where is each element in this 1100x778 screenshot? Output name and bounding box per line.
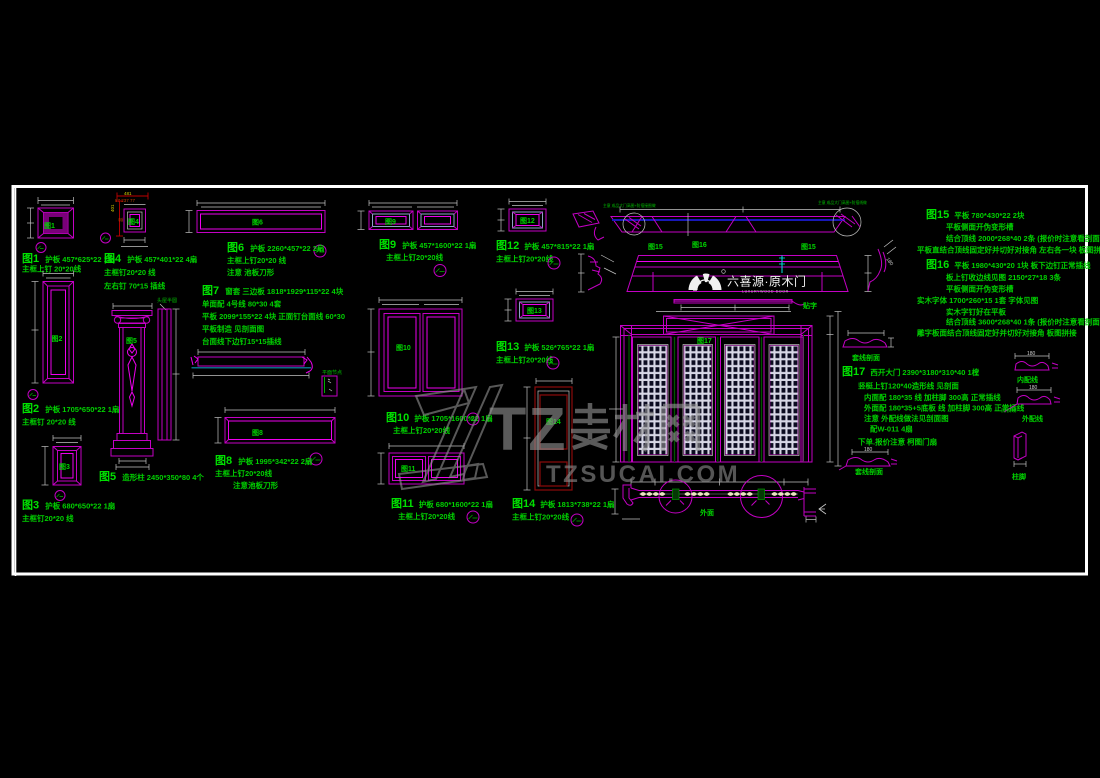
svg-text:单面配 4号线 80*30 4套: 单面配 4号线 80*30 4套 [202, 299, 282, 309]
svg-text:图8: 图8 [252, 428, 263, 437]
svg-text:图6: 图6 [252, 218, 263, 227]
svg-text:图5: 图5 [126, 336, 137, 345]
svg-text:主框钉 20*20 线: 主框钉 20*20 线 [22, 417, 76, 427]
svg-text:180: 180 [1027, 351, 1036, 357]
svg-text:注意 外配线做法见剖面图: 注意 外配线做法见剖面图 [864, 413, 949, 423]
svg-text:下单.报价注意 柯图门扇: 下单.报价注意 柯图门扇 [858, 437, 937, 447]
svg-text:平板侧面开伪变形槽: 平板侧面开伪变形槽 [946, 222, 1014, 232]
svg-text:柱脚: 柱脚 [1012, 472, 1026, 481]
svg-text:主框上钉 20*20线: 主框上钉 20*20线 [22, 264, 82, 274]
svg-text:主意 成品大门高图+防搭接图做: 主意 成品大门高图+防搭接图做 [603, 203, 656, 208]
svg-text:显: 显 [119, 217, 124, 222]
svg-text:贴字: 贴字 [802, 301, 817, 310]
svg-text:图3: 图3 [59, 462, 70, 471]
svg-text:TZ: TZ [489, 395, 568, 463]
svg-text:套线剖面: 套线剖面 [852, 353, 880, 362]
svg-text:主框上钉20*20线: 主框上钉20*20线 [512, 512, 570, 522]
svg-text:结合顶线 3600*268*40 1条 (报价时注意看剖面图: 结合顶线 3600*268*40 1条 (报价时注意看剖面图) [946, 317, 1100, 327]
svg-text:平板侧面开伪变形槽: 平板侧面开伪变形槽 [946, 284, 1014, 294]
svg-text:底板线: 底板线 [1001, 407, 1016, 414]
svg-text:外配线: 外配线 [1022, 414, 1043, 423]
svg-text:LUXURYWOOD DOOR: LUXURYWOOD DOOR [742, 290, 789, 294]
svg-text:图16: 图16 [692, 240, 707, 249]
svg-text:主框钉20*20 线: 主框钉20*20 线 [22, 513, 74, 523]
svg-text:主框上钉20*20线: 主框上钉20*20线 [398, 511, 456, 521]
svg-text:主框上钉20*20 线: 主框上钉20*20 线 [227, 255, 287, 265]
svg-text:图1: 图1 [44, 221, 55, 230]
svg-text:180: 180 [864, 447, 873, 453]
svg-text:结合顶线 2000*268*40 2条 (报价时注意看剖面图: 结合顶线 2000*268*40 2条 (报价时注意看剖面图) [946, 233, 1100, 243]
svg-text:平板制造 见剖面图: 平板制造 见剖面图 [202, 324, 265, 334]
svg-text:台面线下边钉15*15插线: 台面线下边钉15*15插线 [202, 336, 282, 346]
svg-text:实木字钉好在平板: 实木字钉好在平板 [946, 307, 1006, 317]
svg-text:头屋半圆: 头屋半圆 [157, 297, 177, 304]
svg-text:注意 池板刀形: 注意 池板刀形 [227, 267, 275, 277]
svg-text:平板 2099*155*22 4块 正面钉台面线 60*30: 平板 2099*155*22 4块 正面钉台面线 60*30 [202, 311, 345, 321]
svg-text:180: 180 [1029, 385, 1038, 391]
svg-text:TZSUCAI.COM: TZSUCAI.COM [546, 461, 740, 488]
svg-text:竖梃上钉120*40造形线 见剖面: 竖梃上钉120*40造形线 见剖面 [858, 381, 959, 391]
svg-text:平板直结合顶线固定好并切好对接角 左右各一块 板图拼接: 平板直结合顶线固定好并切好对接角 左右各一块 板图拼接 [917, 245, 1100, 255]
svg-text:图15: 图15 [801, 242, 816, 251]
svg-text:实木字体 1700*260*15 1套 字体见图: 实木字体 1700*260*15 1套 字体见图 [917, 295, 1039, 305]
svg-text:注意池板刀形: 注意池板刀形 [233, 480, 278, 490]
svg-text:图2: 图2 [52, 334, 63, 343]
svg-text:图9: 图9 [385, 217, 396, 226]
svg-text:主框钉20*20 线: 主框钉20*20 线 [104, 267, 156, 277]
svg-text:主框上钉20*20线: 主框上钉20*20线 [386, 252, 444, 262]
svg-text:套线剖面: 套线剖面 [855, 467, 883, 476]
svg-text:401: 401 [110, 204, 115, 212]
svg-text:图10: 图10 [396, 343, 411, 352]
svg-text:图12: 图12 [520, 216, 535, 225]
svg-text:外面: 外面 [700, 508, 714, 517]
svg-text:雕字板面结合顶线固定好并切好对接角 板图拼接: 雕字板面结合顶线固定好并切好对接角 板图拼接 [917, 328, 1077, 338]
svg-text:主框上钉20*20线: 主框上钉20*20线 [393, 425, 451, 435]
svg-text:内面配 180*35 线 加柱脚 300高 正常插线: 内面配 180*35 线 加柱脚 300高 正常插线 [864, 392, 1001, 402]
svg-text:主框上钉20*20线: 主框上钉20*20线 [215, 468, 273, 478]
svg-text:内配线: 内配线 [1017, 375, 1038, 384]
svg-text:481: 481 [124, 191, 132, 196]
svg-text:87 237 77: 87 237 77 [115, 198, 136, 203]
svg-text:图4: 图4 [128, 217, 139, 226]
svg-text:主框上钉20*20线: 主框上钉20*20线 [496, 355, 554, 365]
svg-text:平面节点: 平面节点 [322, 370, 342, 376]
svg-text:图15: 图15 [648, 242, 663, 251]
svg-text:六喜源·原木门: 六喜源·原木门 [727, 274, 807, 289]
svg-text:配W-011 4扇: 配W-011 4扇 [870, 424, 913, 434]
svg-text:图13: 图13 [527, 306, 542, 315]
svg-text:板上钉收边线见图 2150*27*18 3条: 板上钉收边线见图 2150*27*18 3条 [946, 272, 1062, 282]
svg-text:主框上钉20*20线: 主框上钉20*20线 [496, 254, 554, 264]
svg-text:主意 成品大门高图+防搭线做: 主意 成品大门高图+防搭线做 [818, 200, 867, 205]
svg-text:图17: 图17 [697, 336, 712, 345]
svg-text:左右钉 70*15 插线: 左右钉 70*15 插线 [103, 281, 166, 291]
